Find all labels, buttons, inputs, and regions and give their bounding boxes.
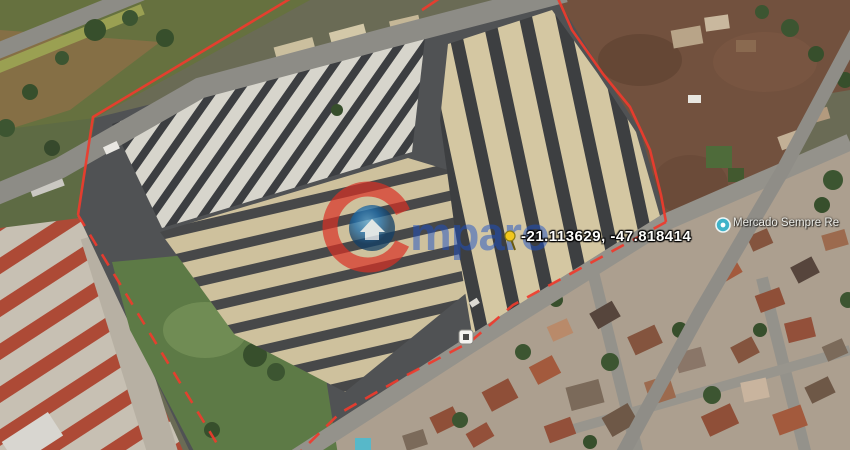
satellite-map[interactable]: mparo -21.113629, -47.818414 Mercado Sem… — [0, 0, 850, 450]
coordinates-label: -21.113629, -47.818414 — [521, 228, 691, 245]
road-sign-badge — [459, 330, 473, 344]
poi-label: Mercado Sempre Re — [733, 217, 839, 229]
pushpin-marker[interactable] — [502, 229, 520, 258]
poi-marker-icon — [714, 216, 732, 234]
pushpin-icon — [502, 229, 520, 253]
pool-tarp — [355, 438, 371, 450]
poi-marker[interactable] — [714, 216, 732, 239]
